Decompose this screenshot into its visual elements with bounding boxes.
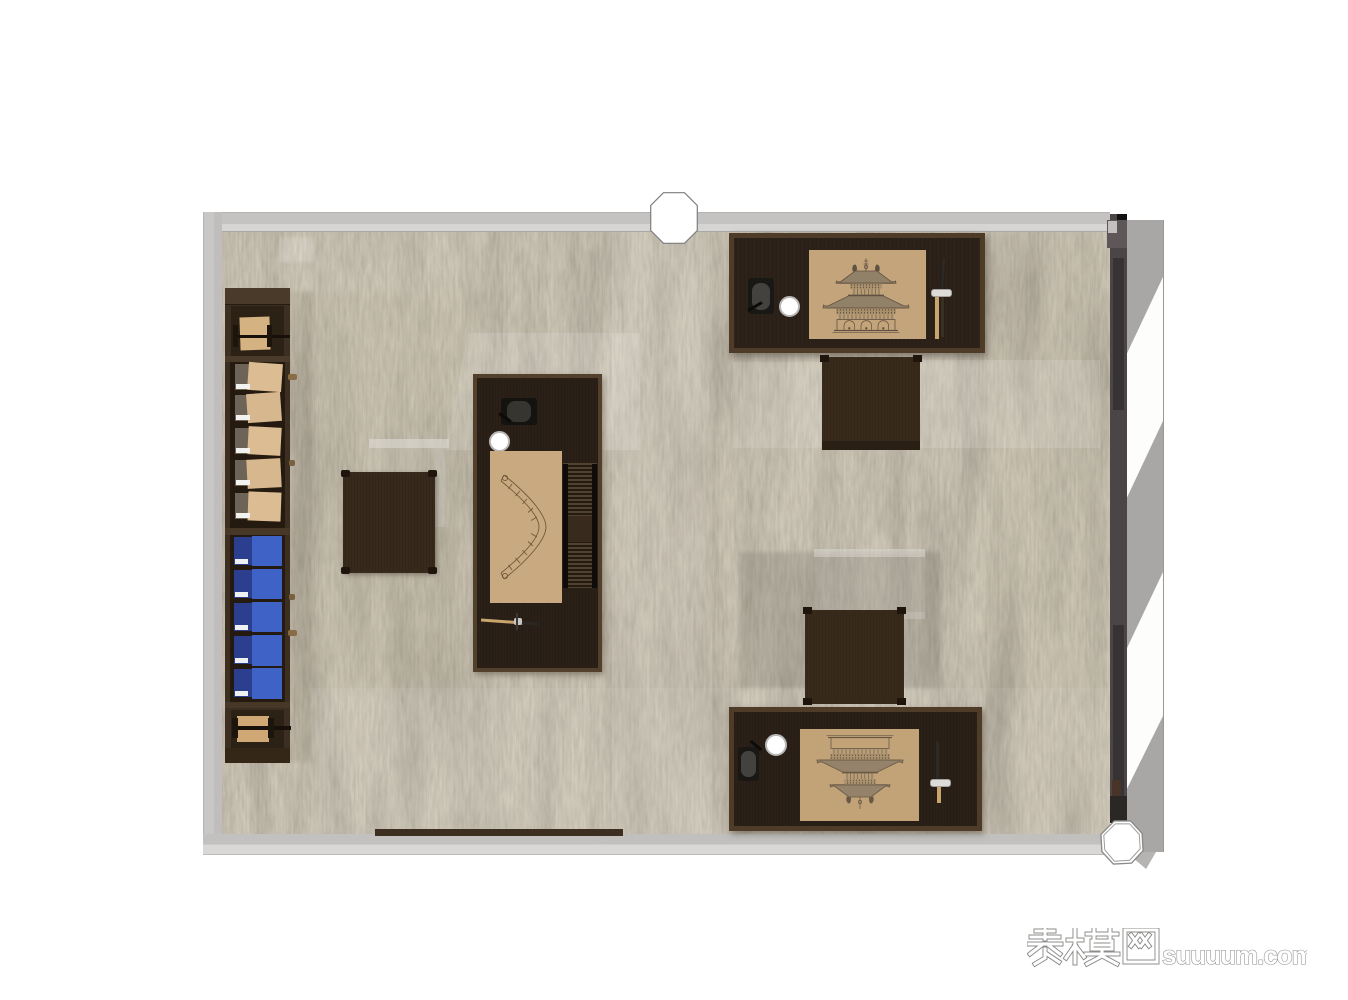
svg-text:suuuum.com: suuuum.com xyxy=(1162,940,1307,970)
